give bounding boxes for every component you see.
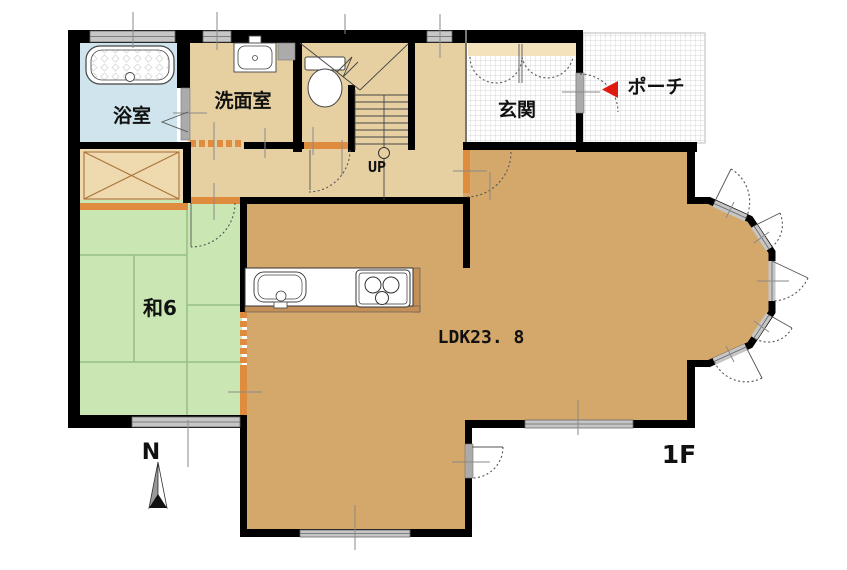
bay-window-floor [687,200,772,364]
entrance-door [576,73,584,113]
japanese-ldk-slider [240,365,247,417]
wall-bath-bottom [68,142,190,149]
bathtub [86,46,174,84]
japanese-room-door-threshold [190,197,240,204]
compass-north-label: N [142,440,160,465]
wall-entrance-bottom [463,142,576,150]
closet-threshold [80,203,188,210]
wall-porch-bottom [576,142,697,152]
bathroom-label: 浴室 [113,104,151,127]
compass-north-icon [149,462,167,508]
stairs-up-label: UP [368,158,386,176]
wall-stair-right [408,43,415,150]
ldk-floor-upper [463,150,687,208]
entrance-label: 玄関 [498,98,536,121]
floor-label: 1F [662,440,696,469]
wall-bath-divider [177,43,190,88]
wall-closet-right [183,142,191,203]
kitchen-stove [356,270,410,307]
toilet-threshold [303,142,348,149]
wall-hall-bottom [240,197,470,204]
porch-label: ポーチ [627,75,684,98]
wall-lower-right [465,420,472,537]
ldk-floor-lower [247,420,465,532]
washroom-label: 洗面室 [214,89,271,112]
wall-lower-left [240,420,247,529]
wall-bay-top [687,197,710,204]
stair-start-marker [379,148,390,159]
wall-left [68,30,80,428]
washroom-utility-block [278,43,295,60]
bay-casement-arc-2 [769,213,782,249]
japanese-room-label: 和6 [143,296,177,320]
toilet [305,57,345,107]
floorplan-canvas: 浴室 洗面室 玄関 ポーチ 和6 LDK23. 8 UP 1F N [0,0,847,570]
ldk-side-door [465,444,473,478]
floorplan-1f: 浴室 洗面室 玄関 ポーチ 和6 LDK23. 8 UP 1F N [0,0,847,570]
kitchen-counter [245,268,420,312]
wall-ldk-right-lower [687,360,695,428]
wall-toilet-stair [348,85,355,152]
wall-ldk-stub [463,197,470,268]
ldk-label: LDK23. 8 [438,327,525,348]
wall-ldk-right-upper [687,145,695,204]
